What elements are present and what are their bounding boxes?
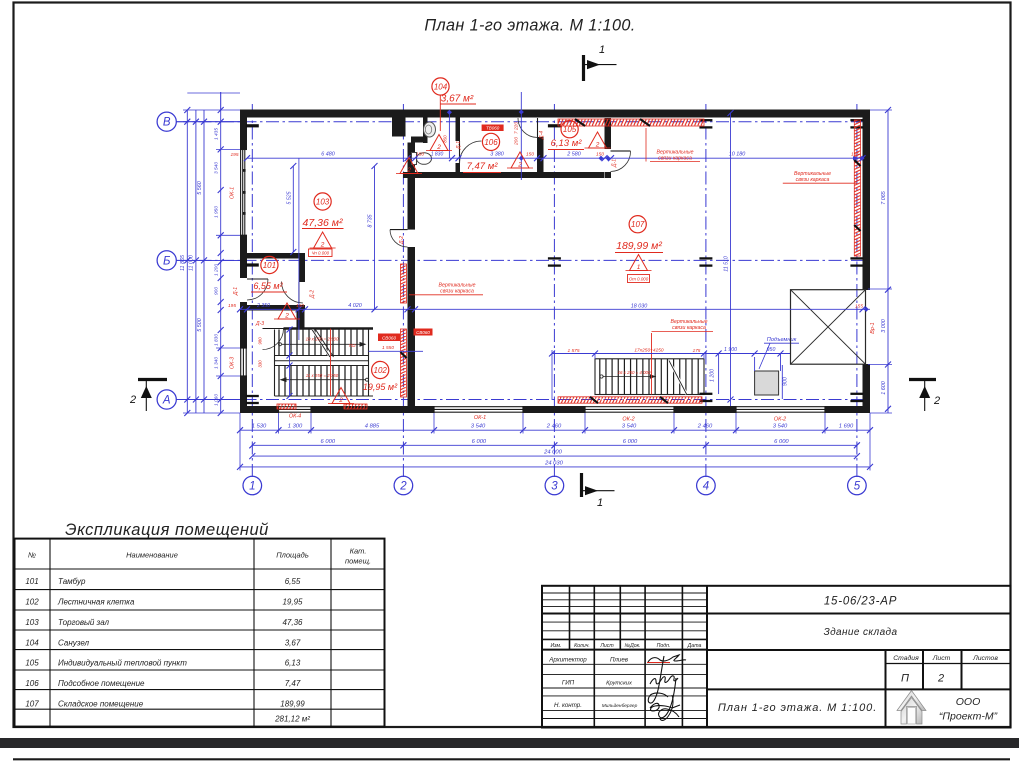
svg-text:10 180: 10 180	[729, 152, 746, 158]
svg-text:6 000: 6 000	[321, 439, 336, 445]
svg-text:150: 150	[526, 152, 534, 158]
svg-text:Н. контр.: Н. контр.	[554, 702, 582, 709]
svg-text:1: 1	[249, 481, 255, 493]
svg-text:980: 980	[258, 337, 263, 345]
svg-text:5 525: 5 525	[286, 191, 292, 204]
svg-text:195: 195	[230, 152, 238, 158]
svg-text:3 540: 3 540	[622, 424, 637, 430]
svg-text:Д-1: Д-1	[612, 159, 618, 168]
svg-text:А: А	[162, 395, 171, 407]
svg-text:10 х 250 = 2 500: 10 х 250 = 2 500	[306, 337, 339, 342]
svg-text:1 550: 1 550	[382, 345, 394, 351]
svg-text:3 540: 3 540	[773, 424, 788, 430]
svg-text:155: 155	[851, 152, 859, 157]
svg-text:2: 2	[517, 162, 522, 169]
svg-text:6 480: 6 480	[321, 152, 335, 158]
svg-text:ОК-3: ОК-3	[230, 357, 236, 369]
svg-text:1 200: 1 200	[710, 369, 716, 382]
svg-text:От 0.000: От 0.000	[629, 277, 649, 282]
svg-text:150: 150	[596, 152, 604, 158]
svg-text:1: 1	[599, 44, 605, 56]
svg-text:3: 3	[551, 481, 558, 493]
svg-text:5 500: 5 500	[197, 318, 203, 332]
svg-text:3 540: 3 540	[214, 162, 220, 174]
svg-text:16 х 250 = 4 000: 16 х 250 = 4 000	[618, 370, 651, 375]
svg-text:2 350: 2 350	[256, 303, 270, 309]
svg-text:7,47: 7,47	[285, 679, 301, 688]
svg-text:№Док.: №Док.	[624, 643, 640, 649]
svg-text:Д-3: Д-3	[255, 321, 264, 327]
svg-text:Подп.: Подп.	[657, 643, 671, 649]
svg-text:6 000: 6 000	[472, 439, 487, 445]
svg-text:5: 5	[854, 481, 861, 493]
svg-text:4 885: 4 885	[365, 424, 380, 430]
svg-text:Лист: Лист	[932, 655, 951, 662]
svg-text:2: 2	[436, 144, 441, 151]
svg-text:1 600: 1 600	[881, 381, 887, 395]
svg-text:3 380: 3 380	[490, 152, 504, 158]
svg-text:2: 2	[595, 142, 600, 149]
svg-text:Лист: Лист	[599, 643, 614, 649]
svg-text:Д-2: Д-2	[399, 236, 405, 245]
svg-text:Д-1: Д-1	[233, 287, 239, 296]
svg-text:11 865: 11 865	[180, 254, 186, 271]
svg-text:ОК-1: ОК-1	[230, 187, 236, 199]
svg-text:195: 195	[228, 303, 236, 309]
svg-text:2: 2	[406, 167, 411, 174]
svg-text:702: 702	[348, 343, 356, 348]
svg-text:ОК-1: ОК-1	[474, 415, 486, 421]
svg-text:1 575: 1 575	[567, 348, 579, 354]
svg-text:900: 900	[783, 377, 789, 386]
svg-text:155: 155	[855, 304, 863, 310]
svg-text:101: 101	[25, 577, 38, 586]
svg-text:2: 2	[338, 397, 343, 404]
svg-text:19,95 м²: 19,95 м²	[363, 382, 398, 392]
svg-text:Площадь: Площадь	[276, 551, 309, 560]
svg-text:ОК-4: ОК-4	[289, 414, 301, 420]
svg-text:Колич.: Колич.	[574, 643, 590, 649]
svg-text:11 510: 11 510	[724, 256, 730, 272]
svg-text:ГИП: ГИП	[562, 680, 575, 687]
svg-text:900: 900	[214, 287, 220, 295]
svg-text:6,55 м²: 6,55 м²	[253, 281, 283, 291]
svg-text:103: 103	[316, 198, 330, 207]
svg-text:11 х 250 = 2 750: 11 х 250 = 2 750	[306, 373, 339, 378]
svg-text:ОК-2: ОК-2	[622, 417, 634, 423]
svg-text:104: 104	[25, 638, 39, 647]
svg-text:2 580: 2 580	[566, 152, 581, 158]
svg-text:Индивидуальный тепловой пункт: Индивидуальный тепловой пункт	[58, 659, 187, 668]
svg-text:“Проект-М”: “Проект-М”	[939, 711, 998, 723]
svg-text:связи каркаса: связи каркаса	[796, 177, 830, 183]
svg-text:7 065: 7 065	[881, 190, 887, 204]
svg-text:2: 2	[399, 481, 407, 493]
svg-text:СВ060: СВ060	[382, 336, 396, 341]
svg-text:15-06/23-АР: 15-06/23-АР	[824, 596, 897, 608]
svg-text:Стадия: Стадия	[893, 654, 919, 662]
svg-text:24 030: 24 030	[544, 460, 564, 466]
svg-text:связи каркаса: связи каркаса	[672, 325, 706, 331]
svg-text:7 220: 7 220	[513, 122, 519, 134]
svg-text:11 000: 11 000	[189, 255, 195, 271]
svg-text:175: 175	[693, 348, 701, 353]
svg-text:4 020: 4 020	[348, 303, 362, 309]
svg-text:3 000: 3 000	[881, 319, 887, 333]
svg-text:106: 106	[25, 679, 39, 688]
svg-text:ООО: ООО	[956, 696, 981, 708]
svg-text:103: 103	[25, 618, 39, 627]
svg-text:107: 107	[631, 220, 645, 229]
svg-text:8 735: 8 735	[368, 214, 374, 227]
svg-text:2: 2	[129, 394, 136, 406]
svg-text:7,47 м²: 7,47 м²	[467, 161, 499, 172]
svg-text:6 000: 6 000	[774, 439, 789, 445]
svg-text:Лестничная клетка: Лестничная клетка	[57, 598, 135, 607]
svg-text:24 000: 24 000	[543, 450, 563, 456]
svg-text:1 200: 1 200	[214, 264, 220, 276]
svg-text:17х250+4250: 17х250+4250	[634, 348, 664, 354]
svg-text:1 830: 1 830	[214, 334, 220, 346]
svg-text:3,67: 3,67	[285, 638, 301, 647]
svg-text:2 460: 2 460	[697, 424, 713, 430]
svg-text:Д-2: Д-2	[310, 290, 316, 299]
svg-text:189,99 м²: 189,99 м²	[616, 240, 662, 252]
svg-text:В: В	[163, 117, 171, 129]
svg-text:Санузел: Санузел	[58, 638, 90, 647]
svg-text:П: П	[901, 673, 909, 685]
svg-text:СВ060: СВ060	[416, 330, 430, 335]
svg-text:Вр-1: Вр-1	[870, 322, 876, 333]
svg-text:План 1-го этажа. М 1:100.: План 1-го этажа. М 1:100.	[424, 17, 635, 35]
svg-text:5 560: 5 560	[197, 181, 203, 195]
svg-text:150: 150	[416, 152, 424, 158]
svg-text:Тамбур: Тамбур	[58, 577, 86, 586]
svg-text:1: 1	[637, 264, 641, 271]
svg-text:Здание склада: Здание склада	[824, 627, 898, 638]
svg-text:Подсобное помещение: Подсобное помещение	[58, 679, 145, 688]
svg-text:150: 150	[296, 303, 304, 309]
svg-text:200: 200	[513, 137, 519, 146]
svg-text:19,95: 19,95	[282, 598, 303, 607]
svg-text:1: 1	[597, 497, 603, 509]
svg-text:1 830: 1 830	[431, 152, 444, 158]
svg-text:Экспликация помещений: Экспликация помещений	[65, 521, 269, 539]
svg-text:189,99: 189,99	[280, 699, 305, 708]
svg-text:104: 104	[434, 83, 448, 92]
svg-text:6 000: 6 000	[623, 439, 638, 445]
svg-text:План 1-го этажа. М 1:100.: План 1-го этажа. М 1:100.	[718, 702, 877, 714]
svg-text:101: 101	[263, 261, 276, 270]
svg-text:ТВ060: ТВ060	[486, 126, 500, 131]
svg-text:2: 2	[284, 313, 289, 320]
svg-text:2: 2	[937, 673, 944, 685]
svg-text:1 300: 1 300	[288, 424, 303, 430]
svg-text:1 530: 1 530	[252, 424, 267, 430]
svg-text:1 340: 1 340	[214, 357, 220, 369]
svg-text:Листов: Листов	[972, 655, 998, 662]
svg-text:Чп 0.000: Чп 0.000	[311, 251, 329, 256]
svg-text:Крутских: Крутских	[606, 681, 633, 687]
svg-text:помещ.: помещ.	[345, 557, 371, 566]
svg-text:Торговый зал: Торговый зал	[58, 618, 110, 627]
svg-text:105: 105	[563, 125, 577, 134]
svg-text:2 460: 2 460	[546, 424, 562, 430]
svg-text:281,12 м²: 281,12 м²	[274, 715, 310, 724]
svg-text:Б: Б	[163, 255, 171, 267]
svg-text:ОК-2: ОК-2	[774, 417, 786, 423]
svg-text:102: 102	[25, 598, 39, 607]
svg-text:1 690: 1 690	[839, 424, 854, 430]
svg-text:Подъемник: Подъемник	[767, 337, 797, 343]
svg-text:Д-4: Д-4	[539, 131, 545, 140]
svg-text:6,13: 6,13	[285, 659, 301, 668]
svg-text:Плиев: Плиев	[610, 657, 629, 664]
svg-text:связи каркаса: связи каркаса	[440, 289, 474, 295]
svg-text:Наименование: Наименование	[126, 551, 178, 560]
svg-text:6,55: 6,55	[285, 577, 301, 586]
svg-text:Д-1: Д-1	[456, 141, 462, 150]
svg-text:Мильденбергер: Мильденбергер	[602, 703, 638, 709]
svg-text:47,36 м²: 47,36 м²	[303, 217, 343, 229]
svg-text:3,67 м²: 3,67 м²	[441, 94, 474, 105]
svg-text:1 435: 1 435	[214, 128, 220, 140]
svg-text:1 950: 1 950	[214, 206, 220, 218]
svg-text:330: 330	[258, 360, 263, 368]
svg-text:18 030: 18 030	[631, 304, 648, 310]
svg-text:4: 4	[703, 481, 709, 493]
svg-text:Складское помещение: Складское помещение	[58, 699, 144, 708]
svg-text:Дата: Дата	[687, 643, 702, 649]
svg-text:связи каркаса: связи каркаса	[658, 156, 692, 162]
svg-text:Архитектор: Архитектор	[548, 657, 587, 664]
svg-text:6,13 м²: 6,13 м²	[551, 138, 583, 149]
svg-text:2: 2	[933, 395, 940, 407]
svg-text:Кат.: Кат.	[350, 547, 367, 556]
svg-text:105: 105	[25, 659, 39, 668]
svg-text:№: №	[28, 551, 36, 560]
svg-text:2: 2	[320, 242, 325, 249]
svg-text:3 540: 3 540	[471, 424, 486, 430]
svg-text:102: 102	[374, 366, 388, 375]
svg-text:106: 106	[484, 138, 498, 147]
svg-text:107: 107	[25, 699, 39, 708]
svg-text:Изм.: Изм.	[550, 643, 561, 649]
svg-text:47,36: 47,36	[282, 618, 303, 627]
